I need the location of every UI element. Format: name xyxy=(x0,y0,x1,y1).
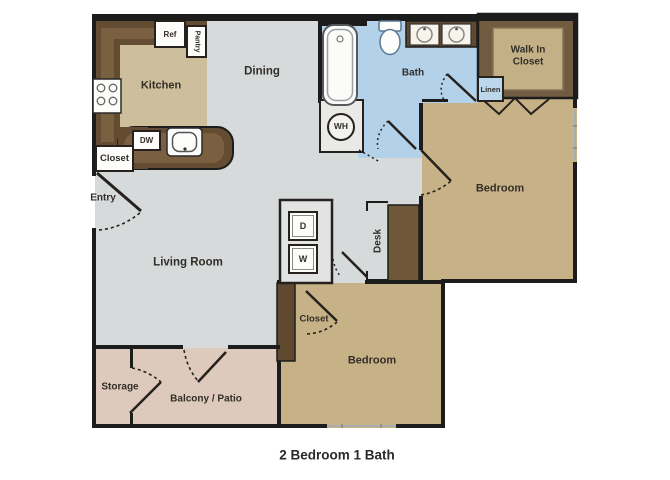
linen-closet-box: Linen xyxy=(477,76,504,102)
living-room-label: Living Room xyxy=(153,256,223,269)
entry-closet-box: Closet xyxy=(95,145,134,172)
pantry-box: Pantry xyxy=(186,25,207,58)
balcony-label: Balcony / Patio xyxy=(170,393,242,405)
bedroom-bottom-label: Bedroom xyxy=(348,355,396,368)
washer-box: W xyxy=(288,244,318,274)
dishwasher-box: DW xyxy=(132,130,161,151)
bathtub-icon xyxy=(323,25,357,105)
bedroom-right-label: Bedroom xyxy=(476,183,524,196)
plan-caption: 2 Bedroom 1 Bath xyxy=(279,448,395,463)
storage-label: Storage xyxy=(101,381,138,393)
water-heater-label: WH xyxy=(334,122,348,132)
floor-plan-drawing xyxy=(0,0,670,480)
vanity-sinks-icon xyxy=(406,21,477,47)
dryer-box: D xyxy=(288,211,318,241)
toilet-icon xyxy=(379,21,401,55)
walk-in-closet-label: Walk In Closet xyxy=(501,45,555,68)
floor-plan: Ref Pantry DW Closet Linen D W Kitchen D… xyxy=(0,0,670,480)
desk-label: Desk xyxy=(372,229,384,253)
entry-label: Entry xyxy=(90,192,116,204)
kitchen-sink-icon xyxy=(167,128,202,156)
stove-icon xyxy=(93,79,121,113)
kitchen-label: Kitchen xyxy=(141,80,181,93)
bath-label: Bath xyxy=(402,67,424,79)
dining-label: Dining xyxy=(244,65,280,78)
pantry-label: Pantry xyxy=(193,31,200,53)
refrigerator-box: Ref xyxy=(154,20,186,48)
bedroom-closet-label: Closet xyxy=(299,315,328,326)
